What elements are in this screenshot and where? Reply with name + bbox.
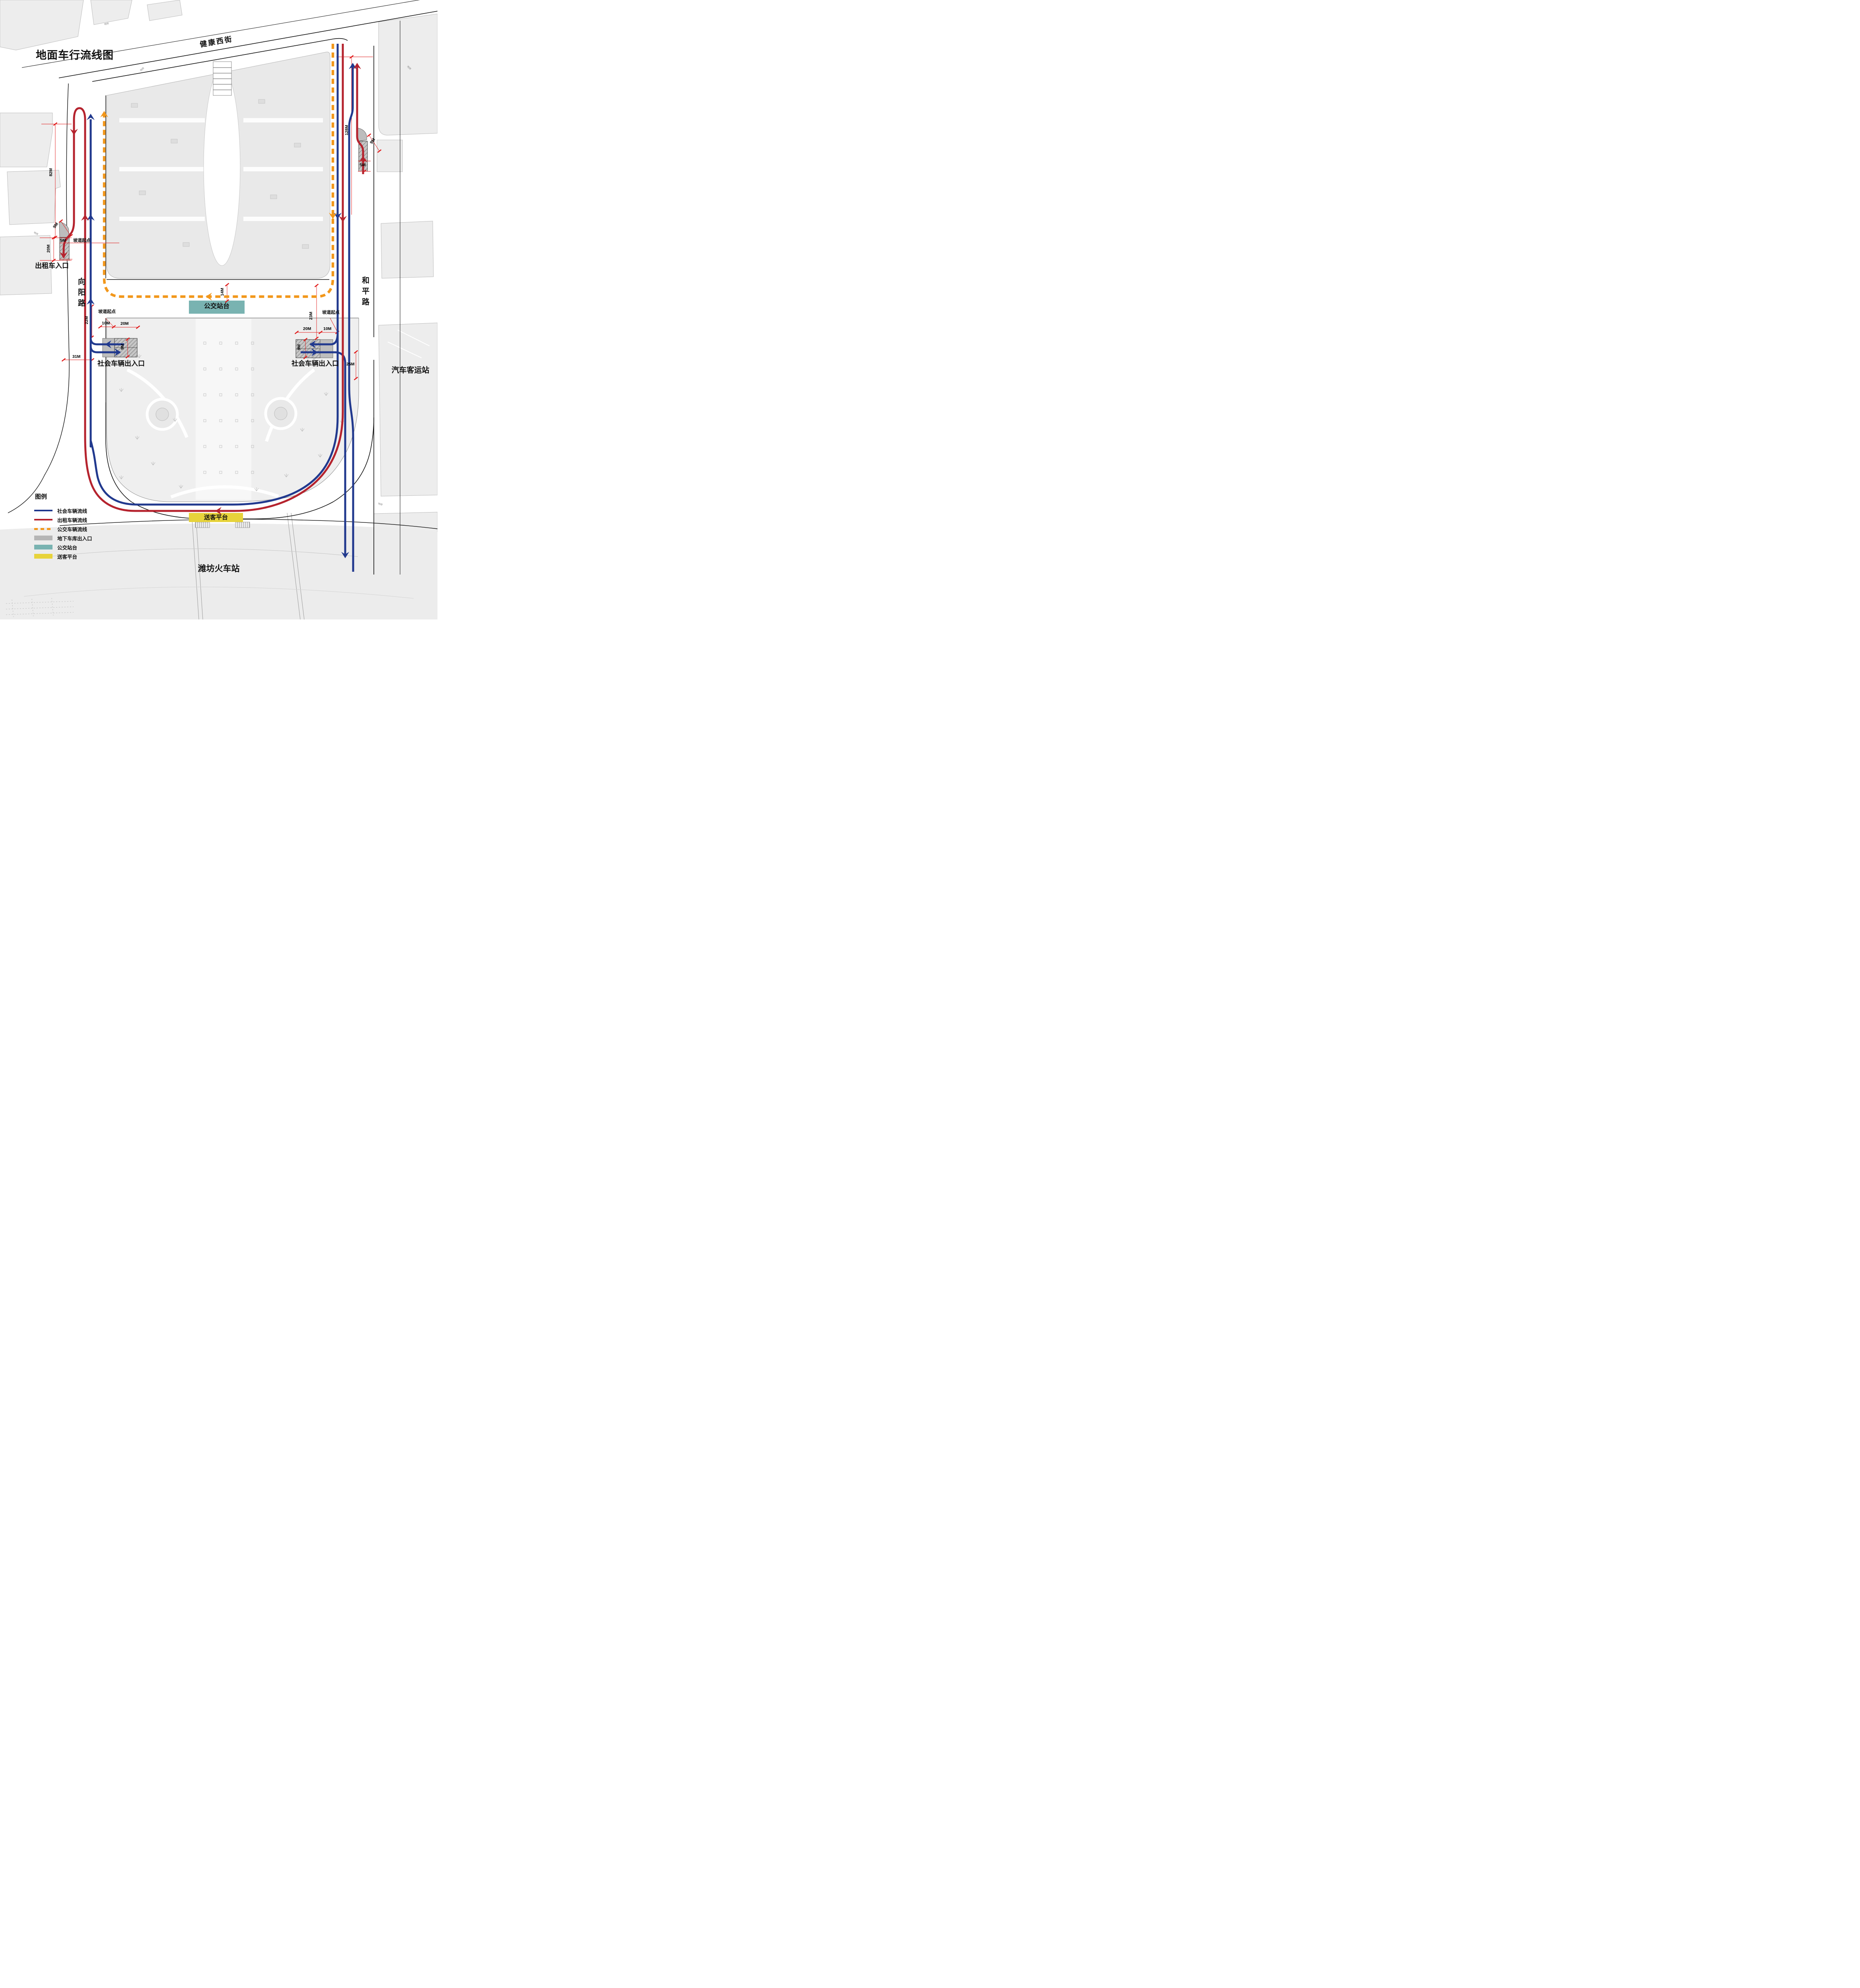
- plaza-axis: [196, 319, 251, 500]
- legend-item-busplatform: 公交站台: [34, 544, 77, 550]
- legend-swatch-social-line: [34, 508, 52, 513]
- legend-label: 社会车辆流线: [57, 507, 87, 514]
- dim-23m: 23M: [309, 312, 313, 320]
- street-label-right: 和平路: [361, 276, 369, 309]
- ramp-start-label-taxi: 坡道起点: [73, 239, 91, 243]
- railway-station-label: 潍坊火车站: [187, 565, 251, 573]
- dim-5m-taxi: 5M: [60, 239, 66, 243]
- legend-item-bus: 公交车辆流线: [34, 526, 87, 532]
- dim-14m: 14M: [220, 288, 225, 296]
- page-title: 地面车行流线图: [36, 50, 114, 61]
- dim-5m-right: 5M: [360, 163, 366, 167]
- bus-platform-label: 公交站台: [189, 303, 245, 310]
- legend-label: 出租车辆流线: [57, 516, 87, 524]
- legend-item-taxi: 出租车辆流线: [34, 517, 87, 522]
- social-entrance-right-label: 社会车辆出入口: [292, 360, 339, 367]
- street-label-left: 向阳路: [77, 278, 85, 310]
- legend-label: 送客平台: [57, 553, 77, 560]
- ramp-start-label-left: 坡道起点: [98, 310, 116, 314]
- legend-swatch-garage: [34, 536, 52, 540]
- legend-label: 地下车库出入口: [57, 534, 92, 542]
- legend-swatch-bus-line: [34, 526, 52, 531]
- dim-9m-left: 9M: [121, 344, 125, 350]
- site-plan-canvas: 地面车行流线图 健康西街 向阳路 和平路 出租车入口 社会车辆出入口 社会车辆出…: [0, 0, 437, 619]
- dim-82m: 82M: [49, 168, 53, 176]
- social-entrance-left-label: 社会车辆出入口: [97, 360, 145, 367]
- legend-item-social: 社会车辆流线: [34, 508, 87, 513]
- legend-swatch-dropoff-platform: [34, 554, 52, 559]
- dim-10m-right: 10M: [323, 327, 331, 331]
- dim-128m: 128M: [345, 125, 349, 135]
- dim-20m-taxi: 20M: [47, 245, 51, 252]
- legend-swatch-bus-platform: [34, 545, 52, 549]
- ramp-start-label-right: 坡道起点: [322, 311, 340, 315]
- stair-hatch: [195, 522, 210, 528]
- dim-20m-right: 20M: [303, 327, 311, 331]
- legend-label: 公交站台: [57, 544, 77, 551]
- dim-31m: 31M: [72, 355, 80, 359]
- dim-22m: 22M: [85, 316, 89, 324]
- legend-title: 图例: [35, 494, 47, 500]
- dropoff-platform-label: 送客平台: [189, 514, 243, 520]
- dim-25m: 25M: [346, 362, 354, 367]
- bus-terminal-label: 汽车客运站: [383, 367, 437, 374]
- legend-swatch-taxi-line: [34, 517, 52, 522]
- legend-item-garage: 地下车库出入口: [34, 535, 92, 541]
- dim-9m-right: 9M: [297, 344, 301, 350]
- dim-20m-left: 20M: [121, 322, 128, 326]
- dim-10m-left: 10M: [102, 321, 110, 326]
- legend-label: 公交车辆流线: [57, 525, 87, 533]
- stair-hatch: [235, 522, 250, 528]
- legend-item-dropoff: 送客平台: [34, 553, 77, 559]
- taxi-entrance-label: 出租车入口: [35, 262, 69, 269]
